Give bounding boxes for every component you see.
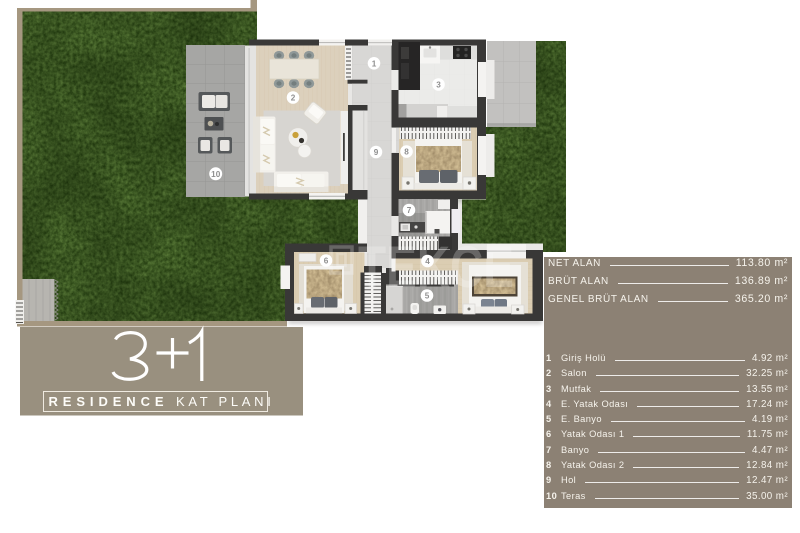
svg-text:TEKCE: TEKCE	[358, 235, 514, 300]
svg-text:3: 3	[436, 81, 441, 90]
svg-text:9: 9	[374, 148, 379, 157]
svg-text:KAT PLANI: KAT PLANI	[176, 394, 275, 409]
svg-text:RESIDENCE: RESIDENCE	[49, 394, 169, 409]
svg-text:4: 4	[425, 257, 430, 266]
svg-text:1: 1	[372, 59, 377, 68]
svg-text:10: 10	[211, 170, 221, 179]
svg-text:8: 8	[404, 148, 409, 157]
svg-text:2: 2	[291, 94, 296, 103]
svg-text:5: 5	[425, 292, 430, 301]
svg-text:7: 7	[407, 206, 412, 215]
svg-text:6: 6	[324, 257, 329, 266]
